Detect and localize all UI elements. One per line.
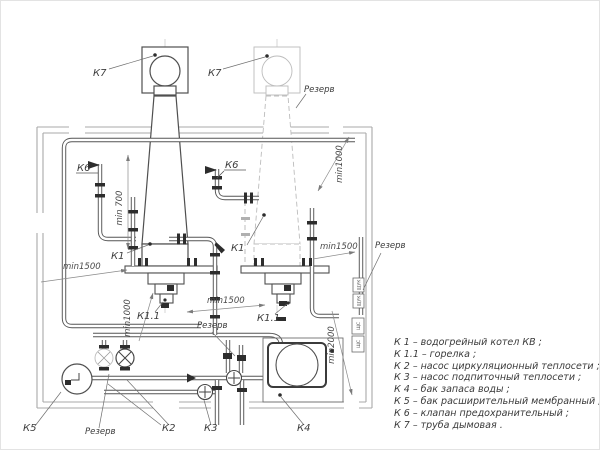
label-k3: К3 bbox=[204, 423, 217, 434]
dim-min1500-mid: min1500 bbox=[207, 296, 245, 306]
dim-min1500-right: min1500 bbox=[320, 242, 358, 252]
label-k1-1-reserve: К1.1 bbox=[257, 313, 280, 324]
legend-item: К 1 – водогрейный котел КВ ; bbox=[394, 337, 600, 349]
boiler-k1-reserve bbox=[241, 266, 329, 306]
drawing-canvas: ЩУК ЩУК ЩС ЩС min 700 min1500 min1000 mi… bbox=[0, 0, 600, 450]
boiler-k1-main bbox=[125, 266, 217, 308]
legend-item: К 6 – клапан предохранительный ; bbox=[394, 408, 600, 420]
chimney-k7-reserve bbox=[241, 47, 300, 266]
cabinet-label: ЩС bbox=[356, 340, 362, 348]
label-reserve-right: Резерв bbox=[375, 241, 406, 251]
legend-item: К 2 – насос циркуляционный теплосети ; bbox=[394, 361, 600, 373]
label-k6-1: К6 bbox=[77, 163, 90, 174]
legend: К 1 – водогрейный котел КВ ; К 1.1 – гор… bbox=[394, 337, 600, 431]
label-k6-2: К6 bbox=[225, 160, 238, 171]
burner-k1-1-reserve bbox=[265, 273, 301, 306]
label-reserve-chimney: Резерв bbox=[304, 85, 335, 95]
dim-min2000: min2000 bbox=[327, 326, 337, 364]
label-reserve-pump: Резерв bbox=[85, 427, 116, 437]
label-k1-main: К1 bbox=[111, 251, 124, 262]
legend-item: К 7 – труба дымовая . bbox=[394, 420, 600, 432]
dim-min1000-right: min1000 bbox=[335, 145, 345, 183]
label-k7-main: К7 bbox=[93, 68, 107, 79]
label-k2: К2 bbox=[162, 423, 175, 434]
label-k4: К4 bbox=[297, 423, 310, 434]
pumps-k2 bbox=[95, 349, 134, 367]
valve bbox=[187, 374, 196, 383]
dim-min1500-left: min1500 bbox=[63, 262, 101, 272]
label-k7-reserve: К7 bbox=[208, 68, 222, 79]
label-k5: К5 bbox=[23, 423, 36, 434]
dim-min700: min 700 bbox=[115, 191, 125, 226]
tank-k5 bbox=[62, 364, 92, 394]
label-reserve-mid: Резерв bbox=[197, 321, 228, 331]
legend-item: К 1.1 – горелка ; bbox=[394, 349, 600, 361]
inline-pump bbox=[227, 371, 242, 386]
label-k1-reserve: К1 bbox=[231, 243, 244, 254]
chimney-k7-main bbox=[142, 47, 188, 266]
legend-item: К 4 – бак запаса воды ; bbox=[394, 384, 600, 396]
cabinet-label: ЩУК bbox=[357, 279, 363, 291]
label-k1-1-main: К1.1 bbox=[137, 311, 160, 322]
dim-min1000-left: min1000 bbox=[123, 299, 133, 337]
cabinet-label: ЩУК bbox=[357, 295, 363, 307]
legend-item: К 3 – насос подпиточный теплосети ; bbox=[394, 372, 600, 384]
burner-k1-1-main bbox=[148, 273, 184, 308]
cabinet-label: ЩС bbox=[356, 322, 362, 330]
pump-k3 bbox=[198, 385, 213, 400]
legend-item: К 5 – бак расширительный мембранный ; bbox=[394, 396, 600, 408]
